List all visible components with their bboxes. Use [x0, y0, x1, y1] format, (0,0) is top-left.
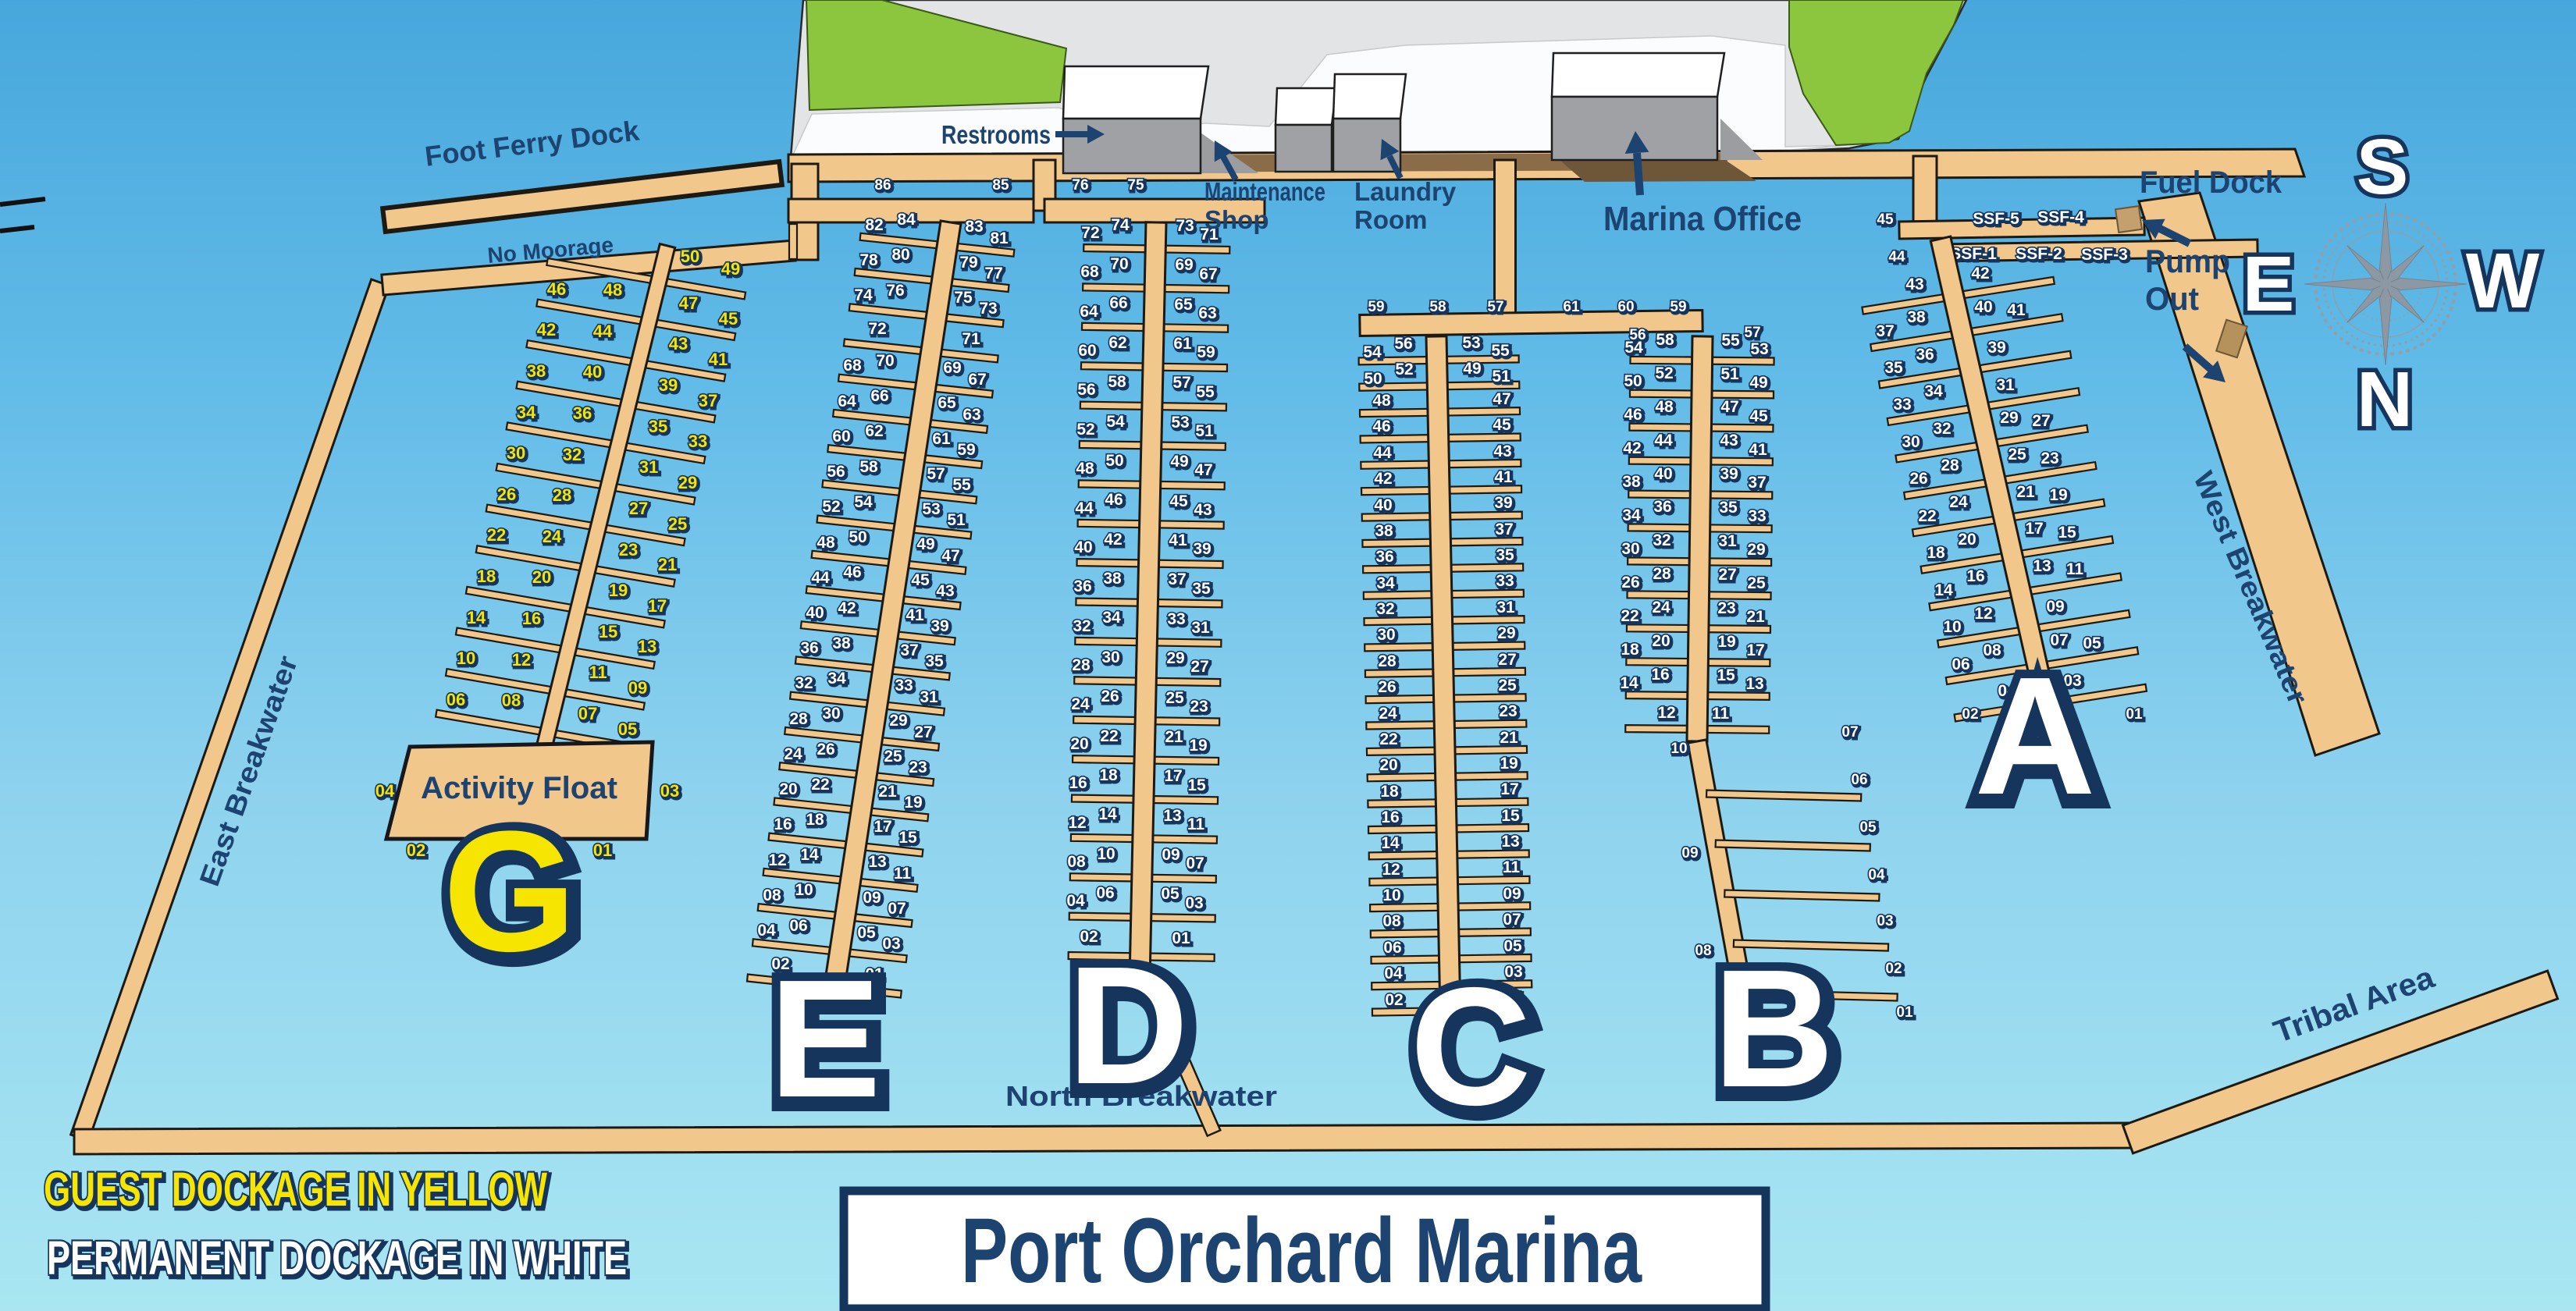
- svg-text:73: 73: [979, 300, 997, 318]
- svg-text:11: 11: [2066, 560, 2084, 578]
- svg-text:09: 09: [2046, 598, 2064, 616]
- svg-text:04: 04: [1868, 867, 1885, 883]
- svg-text:PERMANENT DOCKAGE IN WHITE: PERMANENT DOCKAGE IN WHITE: [47, 1231, 627, 1284]
- svg-text:15: 15: [898, 829, 917, 847]
- svg-text:47: 47: [1720, 398, 1738, 416]
- svg-text:34: 34: [1622, 506, 1641, 524]
- svg-text:65: 65: [1174, 296, 1193, 314]
- svg-text:20: 20: [532, 567, 551, 587]
- svg-text:24: 24: [1652, 599, 1670, 616]
- svg-text:56: 56: [1394, 335, 1412, 353]
- svg-text:38: 38: [1103, 570, 1122, 588]
- svg-text:38: 38: [1622, 473, 1641, 491]
- svg-text:34: 34: [517, 403, 536, 422]
- svg-text:67: 67: [1199, 265, 1217, 283]
- svg-text:29: 29: [2000, 409, 2018, 427]
- svg-text:40: 40: [583, 362, 602, 382]
- svg-text:42: 42: [1623, 439, 1641, 457]
- svg-text:35: 35: [1192, 580, 1211, 598]
- svg-text:12: 12: [512, 650, 531, 670]
- svg-text:68: 68: [843, 357, 862, 375]
- svg-text:01: 01: [2126, 706, 2143, 723]
- svg-text:28: 28: [789, 710, 808, 728]
- svg-text:81: 81: [990, 229, 1009, 247]
- svg-text:24: 24: [1379, 705, 1397, 723]
- svg-text:35: 35: [649, 417, 667, 436]
- svg-text:20: 20: [1652, 632, 1670, 650]
- svg-text:60: 60: [1078, 342, 1096, 360]
- svg-text:32: 32: [563, 445, 582, 464]
- svg-text:27: 27: [914, 723, 932, 741]
- svg-text:18: 18: [1099, 766, 1118, 784]
- svg-text:48: 48: [1372, 392, 1391, 410]
- svg-text:35: 35: [925, 652, 944, 670]
- svg-text:18: 18: [1927, 544, 1945, 562]
- svg-text:24: 24: [1071, 695, 1090, 713]
- svg-text:75: 75: [1127, 177, 1144, 194]
- svg-text:41: 41: [906, 606, 924, 624]
- svg-text:46: 46: [1372, 417, 1390, 435]
- svg-text:17: 17: [873, 818, 891, 836]
- svg-text:39: 39: [1193, 540, 1211, 558]
- svg-text:75: 75: [954, 289, 973, 307]
- svg-text:42: 42: [537, 320, 556, 339]
- svg-text:14: 14: [800, 846, 819, 864]
- svg-text:26: 26: [817, 741, 834, 759]
- svg-text:25: 25: [1747, 574, 1766, 592]
- svg-text:03: 03: [660, 781, 679, 801]
- svg-text:16: 16: [522, 609, 541, 628]
- svg-text:77: 77: [984, 265, 1002, 282]
- svg-text:Laundry: Laundry: [1354, 177, 1457, 206]
- svg-text:16: 16: [1966, 567, 1984, 585]
- svg-text:14: 14: [1620, 674, 1638, 692]
- svg-text:74: 74: [1111, 216, 1130, 234]
- svg-text:28: 28: [1653, 565, 1671, 583]
- svg-text:C: C: [1410, 952, 1531, 1140]
- svg-text:Room: Room: [1354, 205, 1428, 234]
- svg-text:08: 08: [1067, 853, 1086, 871]
- svg-text:55: 55: [952, 476, 971, 494]
- svg-text:SSF-1: SSF-1: [1950, 245, 1997, 263]
- svg-text:15: 15: [599, 622, 617, 641]
- svg-text:SSF-3: SSF-3: [2081, 246, 2128, 264]
- svg-text:47: 47: [679, 293, 698, 313]
- svg-text:14: 14: [467, 608, 486, 627]
- svg-text:11: 11: [1712, 705, 1730, 723]
- svg-text:30: 30: [1101, 648, 1119, 666]
- svg-text:43: 43: [1905, 275, 1923, 293]
- svg-text:64: 64: [838, 393, 856, 410]
- svg-text:05: 05: [1161, 885, 1179, 903]
- svg-text:20: 20: [1958, 531, 1976, 549]
- svg-text:62: 62: [865, 422, 883, 440]
- svg-text:18: 18: [806, 811, 824, 829]
- svg-text:59: 59: [1368, 299, 1384, 315]
- svg-text:31: 31: [1191, 619, 1210, 637]
- svg-text:13: 13: [1745, 675, 1763, 693]
- svg-text:17: 17: [1500, 780, 1518, 798]
- svg-text:Marina Office: Marina Office: [1603, 200, 1802, 238]
- svg-text:21: 21: [1165, 728, 1183, 746]
- svg-text:47: 47: [941, 547, 959, 565]
- svg-text:25: 25: [668, 514, 687, 534]
- svg-text:27: 27: [1190, 658, 1208, 676]
- svg-text:38: 38: [832, 634, 851, 652]
- svg-text:14: 14: [1381, 834, 1400, 852]
- svg-text:Shop: Shop: [1204, 205, 1268, 234]
- svg-text:56: 56: [827, 463, 845, 481]
- svg-text:33: 33: [895, 677, 913, 695]
- svg-text:25: 25: [884, 748, 902, 766]
- svg-text:23: 23: [1717, 599, 1735, 617]
- svg-text:54: 54: [854, 493, 873, 511]
- svg-text:49: 49: [1170, 453, 1188, 471]
- svg-text:29: 29: [1747, 541, 1765, 559]
- svg-text:05: 05: [618, 719, 637, 739]
- svg-text:34: 34: [1102, 609, 1121, 627]
- svg-text:43: 43: [669, 334, 688, 354]
- svg-text:D: D: [1067, 931, 1188, 1119]
- svg-text:05: 05: [857, 924, 876, 942]
- svg-text:59: 59: [957, 441, 975, 459]
- svg-text:26: 26: [1909, 470, 1927, 488]
- svg-text:76: 76: [886, 282, 904, 300]
- svg-text:51: 51: [947, 511, 966, 529]
- svg-text:35: 35: [1884, 359, 1903, 377]
- svg-text:07: 07: [1841, 724, 1858, 741]
- svg-text:38: 38: [1907, 308, 1926, 326]
- svg-text:74: 74: [854, 286, 873, 304]
- svg-text:SSF-2: SSF-2: [2016, 245, 2062, 263]
- svg-text:54: 54: [1624, 339, 1643, 357]
- svg-text:42: 42: [838, 599, 856, 617]
- svg-text:59: 59: [1670, 299, 1686, 315]
- svg-text:66: 66: [1109, 294, 1127, 312]
- svg-text:45: 45: [1749, 407, 1768, 425]
- svg-text:11: 11: [1187, 815, 1205, 833]
- svg-text:57: 57: [1487, 299, 1503, 315]
- svg-text:E: E: [769, 944, 881, 1132]
- svg-text:05: 05: [1859, 819, 1877, 836]
- svg-text:76: 76: [1072, 177, 1088, 194]
- svg-text:59: 59: [1197, 343, 1215, 361]
- svg-text:19: 19: [609, 581, 628, 600]
- svg-text:Fuel Dock: Fuel Dock: [2140, 165, 2282, 200]
- svg-text:16: 16: [1069, 774, 1087, 792]
- svg-text:13: 13: [2033, 557, 2051, 575]
- svg-text:43: 43: [1194, 501, 1212, 519]
- svg-text:48: 48: [603, 280, 622, 300]
- svg-text:24: 24: [543, 527, 562, 546]
- svg-text:51: 51: [1195, 422, 1214, 440]
- svg-text:36: 36: [573, 403, 592, 423]
- svg-text:16: 16: [1381, 808, 1399, 826]
- svg-text:53: 53: [922, 500, 940, 518]
- svg-text:78: 78: [859, 251, 878, 269]
- svg-text:Pump: Pump: [2145, 243, 2230, 279]
- svg-text:11: 11: [1503, 858, 1521, 876]
- svg-text:55: 55: [1721, 332, 1740, 350]
- svg-text:34: 34: [1376, 574, 1395, 592]
- svg-text:58: 58: [859, 458, 878, 476]
- svg-text:47: 47: [1493, 390, 1510, 408]
- svg-text:36: 36: [1916, 346, 1934, 364]
- svg-text:10: 10: [457, 648, 475, 668]
- svg-text:13: 13: [868, 853, 886, 871]
- svg-text:46: 46: [843, 563, 861, 581]
- svg-text:68: 68: [1080, 263, 1099, 281]
- svg-text:55: 55: [1196, 383, 1215, 401]
- svg-text:40: 40: [1074, 538, 1092, 556]
- svg-text:13: 13: [1163, 807, 1181, 825]
- svg-text:37: 37: [900, 641, 918, 659]
- svg-text:07: 07: [1503, 911, 1521, 929]
- svg-text:52: 52: [1076, 421, 1094, 439]
- svg-text:60: 60: [1617, 299, 1634, 315]
- svg-text:29: 29: [678, 473, 697, 492]
- svg-text:30: 30: [1902, 433, 1920, 451]
- svg-text:33: 33: [1893, 396, 1911, 414]
- svg-text:83: 83: [965, 218, 983, 236]
- svg-text:20: 20: [779, 780, 797, 798]
- svg-text:31: 31: [920, 688, 938, 706]
- svg-text:57: 57: [927, 465, 945, 483]
- svg-text:39: 39: [930, 617, 948, 635]
- svg-text:37: 37: [1748, 474, 1766, 492]
- svg-text:01: 01: [593, 840, 612, 860]
- svg-text:31: 31: [1496, 599, 1515, 616]
- svg-text:39: 39: [1720, 465, 1738, 483]
- svg-text:41: 41: [709, 350, 728, 369]
- svg-text:06: 06: [1952, 655, 1969, 673]
- svg-text:28: 28: [1941, 457, 1959, 474]
- svg-text:23: 23: [2041, 449, 2058, 467]
- svg-text:08: 08: [1695, 943, 1711, 959]
- svg-text:46: 46: [1624, 406, 1642, 424]
- svg-text:28: 28: [1378, 652, 1397, 670]
- svg-text:14: 14: [1934, 581, 1953, 599]
- svg-text:50: 50: [849, 528, 866, 546]
- svg-text:65: 65: [938, 394, 956, 412]
- svg-text:45: 45: [911, 571, 930, 589]
- svg-text:13: 13: [638, 637, 656, 656]
- svg-text:44: 44: [593, 322, 613, 341]
- svg-text:43: 43: [1493, 442, 1511, 460]
- svg-text:17: 17: [2025, 520, 2043, 538]
- svg-text:09: 09: [1681, 845, 1698, 862]
- svg-text:36: 36: [1073, 577, 1091, 595]
- svg-text:14: 14: [1098, 805, 1117, 823]
- svg-text:40: 40: [1974, 298, 1992, 316]
- svg-text:04: 04: [375, 781, 395, 801]
- svg-text:30: 30: [507, 443, 525, 463]
- svg-text:02: 02: [407, 840, 425, 860]
- svg-text:31: 31: [1996, 376, 2015, 394]
- svg-text:26: 26: [1621, 574, 1639, 592]
- svg-text:35: 35: [1719, 499, 1738, 517]
- svg-text:12: 12: [1974, 605, 1992, 623]
- svg-text:51: 51: [1492, 368, 1510, 385]
- svg-text:44: 44: [1075, 499, 1094, 517]
- svg-text:55: 55: [1491, 342, 1510, 360]
- svg-text:64: 64: [1080, 303, 1098, 321]
- svg-text:61: 61: [1563, 299, 1580, 315]
- svg-text:34: 34: [827, 670, 846, 687]
- svg-text:09: 09: [863, 889, 881, 907]
- svg-text:04: 04: [757, 922, 776, 940]
- svg-text:27: 27: [1498, 651, 1516, 669]
- svg-text:10: 10: [1382, 886, 1400, 904]
- svg-text:SSF-5: SSF-5: [1973, 210, 2019, 228]
- svg-text:06: 06: [789, 917, 807, 935]
- svg-text:27: 27: [1718, 566, 1736, 584]
- svg-text:17: 17: [1746, 641, 1764, 659]
- svg-text:86: 86: [874, 177, 891, 194]
- svg-text:19: 19: [2049, 486, 2067, 504]
- svg-text:47: 47: [1194, 461, 1212, 479]
- svg-text:42: 42: [1971, 265, 1989, 282]
- svg-text:50: 50: [1105, 452, 1123, 470]
- svg-text:07: 07: [1186, 854, 1204, 872]
- svg-text:52: 52: [822, 498, 840, 516]
- svg-text:22: 22: [1379, 730, 1397, 748]
- svg-text:31: 31: [639, 457, 658, 477]
- svg-text:21: 21: [658, 555, 677, 574]
- svg-text:49: 49: [721, 259, 740, 279]
- svg-text:45: 45: [1493, 416, 1511, 434]
- svg-text:44: 44: [1654, 432, 1673, 449]
- svg-text:63: 63: [962, 406, 980, 424]
- svg-text:32: 32: [1653, 531, 1670, 549]
- svg-text:W: W: [2466, 237, 2540, 325]
- svg-text:32: 32: [795, 674, 813, 692]
- svg-text:26: 26: [1101, 687, 1119, 705]
- svg-text:34: 34: [1924, 382, 1943, 400]
- svg-text:38: 38: [527, 361, 546, 381]
- svg-text:46: 46: [1105, 491, 1123, 509]
- svg-text:A: A: [1974, 641, 2095, 830]
- svg-text:09: 09: [1162, 846, 1179, 864]
- svg-text:38: 38: [1375, 522, 1393, 540]
- svg-text:19: 19: [904, 794, 922, 812]
- svg-text:28: 28: [553, 485, 571, 505]
- svg-text:44: 44: [1888, 249, 1905, 265]
- svg-text:41: 41: [1169, 531, 1187, 549]
- svg-text:E: E: [2243, 240, 2295, 328]
- svg-text:45: 45: [1877, 211, 1894, 228]
- svg-text:11: 11: [894, 865, 912, 883]
- svg-text:37: 37: [1876, 322, 1894, 340]
- svg-text:45: 45: [1169, 492, 1188, 510]
- svg-text:08: 08: [1382, 912, 1401, 930]
- svg-text:29: 29: [1497, 624, 1515, 642]
- svg-text:27: 27: [629, 499, 648, 518]
- svg-text:58: 58: [1429, 299, 1446, 315]
- svg-text:17: 17: [1164, 767, 1182, 785]
- svg-text:24: 24: [784, 745, 802, 763]
- svg-text:60: 60: [832, 428, 850, 446]
- svg-text:32: 32: [1933, 420, 1951, 438]
- svg-text:37: 37: [699, 391, 717, 410]
- svg-text:84: 84: [897, 211, 916, 229]
- svg-text:63: 63: [1198, 304, 1216, 322]
- svg-text:56: 56: [1077, 381, 1095, 399]
- svg-text:15: 15: [2058, 524, 2076, 542]
- svg-text:23: 23: [619, 540, 638, 560]
- svg-text:10: 10: [1097, 845, 1115, 863]
- svg-text:15: 15: [1501, 807, 1520, 825]
- svg-text:10: 10: [1670, 741, 1687, 757]
- svg-text:21: 21: [2016, 483, 2035, 501]
- svg-text:30: 30: [1377, 626, 1395, 644]
- svg-text:49: 49: [1749, 374, 1767, 392]
- svg-text:22: 22: [487, 525, 506, 545]
- svg-text:15: 15: [1187, 776, 1206, 794]
- svg-text:21: 21: [1746, 608, 1765, 626]
- svg-text:58: 58: [1108, 373, 1126, 391]
- svg-text:26: 26: [497, 485, 516, 504]
- svg-text:19: 19: [1189, 737, 1207, 755]
- svg-text:10: 10: [1943, 618, 1961, 636]
- svg-text:69: 69: [943, 359, 961, 377]
- svg-text:06: 06: [1851, 772, 1867, 788]
- svg-text:06: 06: [1096, 884, 1114, 902]
- svg-text:N: N: [2357, 356, 2413, 443]
- svg-text:25: 25: [1498, 677, 1517, 695]
- svg-text:57: 57: [1744, 325, 1760, 341]
- svg-text:Out: Out: [2145, 280, 2199, 317]
- svg-text:40: 40: [1654, 465, 1672, 483]
- svg-text:37: 37: [1168, 570, 1186, 588]
- svg-text:33: 33: [1748, 507, 1766, 525]
- svg-text:23: 23: [1190, 698, 1208, 716]
- svg-text:09: 09: [628, 678, 647, 698]
- svg-text:31: 31: [1718, 532, 1737, 550]
- svg-text:22: 22: [811, 776, 829, 794]
- svg-text:39: 39: [659, 375, 678, 395]
- svg-text:67: 67: [968, 371, 986, 389]
- svg-text:73: 73: [1176, 217, 1194, 235]
- svg-text:03: 03: [1877, 913, 1893, 929]
- svg-text:54: 54: [1363, 343, 1382, 361]
- svg-text:Restrooms: Restrooms: [941, 120, 1051, 149]
- svg-text:G: G: [443, 795, 576, 987]
- svg-text:12: 12: [1657, 704, 1675, 722]
- svg-text:62: 62: [1108, 334, 1126, 352]
- svg-text:57: 57: [1172, 374, 1190, 392]
- svg-text:44: 44: [1373, 444, 1392, 462]
- svg-text:09: 09: [1503, 885, 1521, 903]
- svg-text:15: 15: [1717, 666, 1735, 684]
- svg-text:SSF-4: SSF-4: [2037, 208, 2084, 226]
- svg-text:80: 80: [891, 246, 909, 264]
- svg-text:82: 82: [865, 216, 883, 234]
- svg-text:36: 36: [1375, 548, 1393, 566]
- svg-text:61: 61: [932, 430, 951, 448]
- svg-text:29: 29: [889, 712, 907, 730]
- svg-text:70: 70: [876, 352, 894, 370]
- svg-text:35: 35: [1496, 546, 1514, 564]
- svg-text:29: 29: [1166, 649, 1184, 667]
- svg-text:18: 18: [1621, 641, 1639, 659]
- svg-text:02: 02: [1385, 991, 1403, 1009]
- svg-text:12: 12: [1068, 814, 1086, 832]
- svg-text:33: 33: [1496, 572, 1514, 590]
- svg-text:26: 26: [1378, 678, 1396, 696]
- svg-text:53: 53: [1462, 334, 1480, 352]
- svg-text:37: 37: [1495, 520, 1513, 538]
